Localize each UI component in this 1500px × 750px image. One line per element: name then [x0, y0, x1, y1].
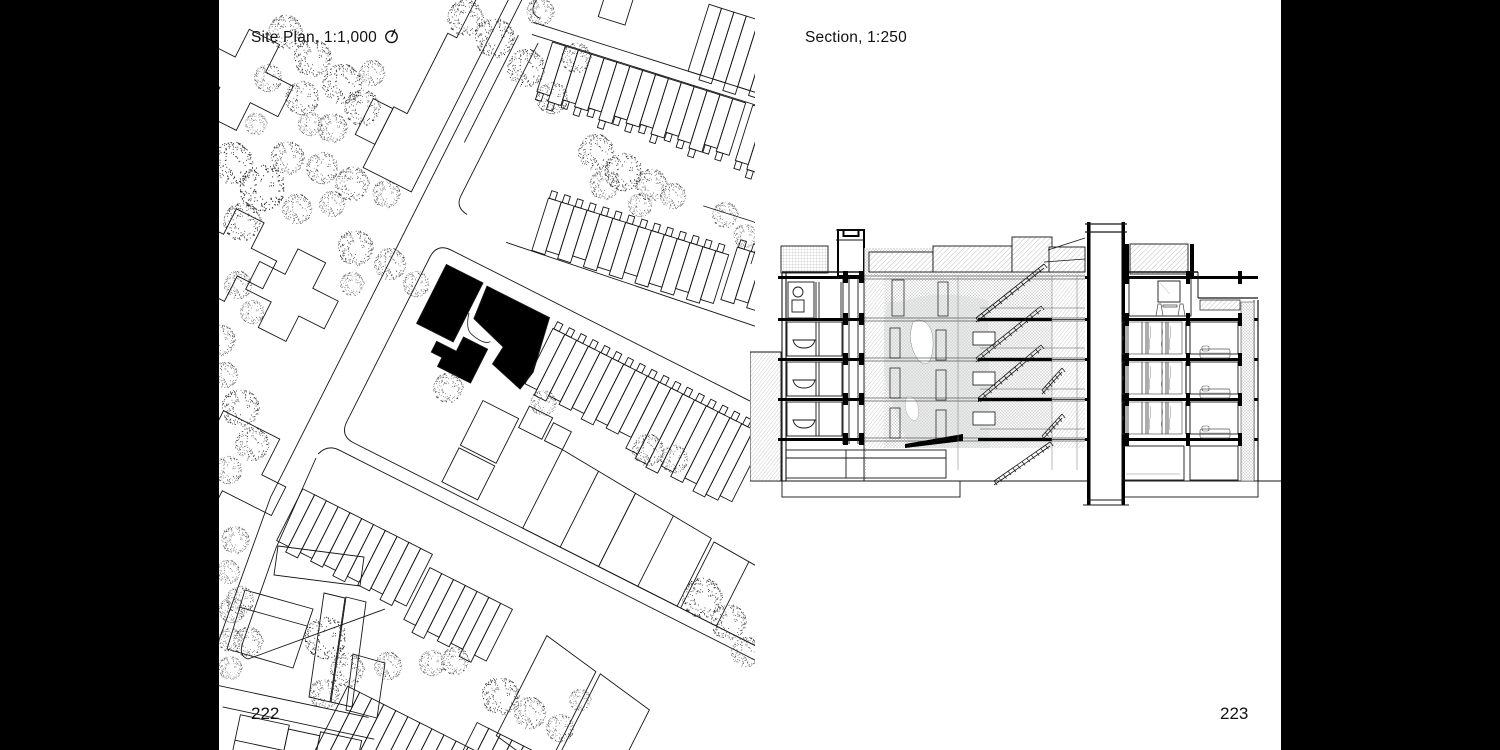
- svg-text:Section, 1:250: Section, 1:250: [805, 29, 907, 46]
- svg-text:222: 222: [251, 704, 279, 723]
- svg-text:Site Plan, 1:1,000: Site Plan, 1:1,000: [251, 29, 377, 46]
- svg-text:223: 223: [1220, 704, 1248, 723]
